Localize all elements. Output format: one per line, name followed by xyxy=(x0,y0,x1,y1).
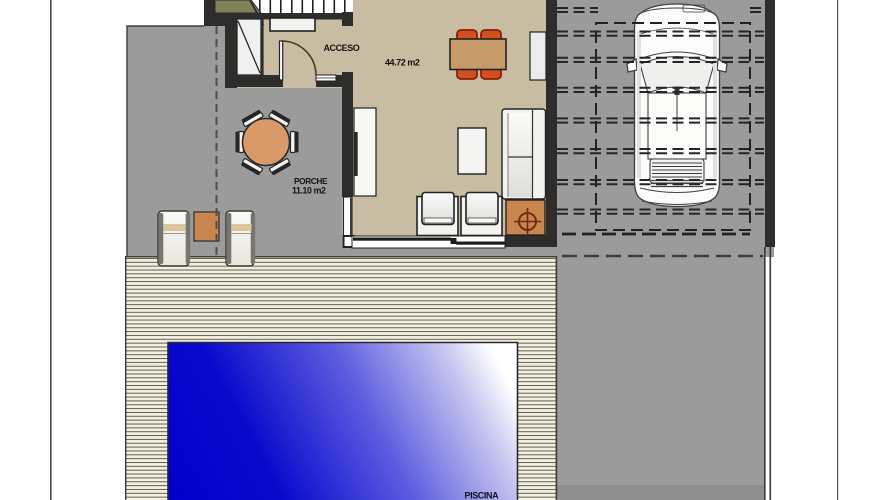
svg-text:ACCESO: ACCESO xyxy=(324,43,360,53)
svg-text:PISCINA: PISCINA xyxy=(465,491,500,500)
svg-text:11.10 m2: 11.10 m2 xyxy=(292,186,326,196)
svg-text:44.72 m2: 44.72 m2 xyxy=(385,58,420,68)
svg-text:PORCHE: PORCHE xyxy=(294,176,328,186)
